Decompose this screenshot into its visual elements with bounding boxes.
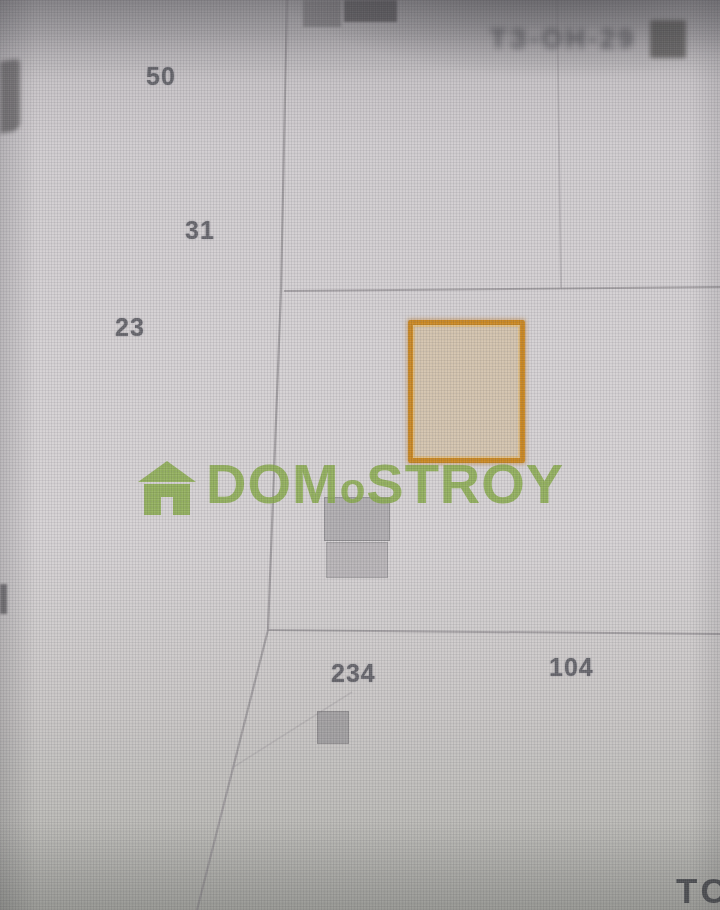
parcel-label: 104 <box>549 653 594 682</box>
building-footprint <box>326 542 388 578</box>
parcel-label: 31 <box>185 216 215 245</box>
selected-parcel-highlight[interactable] <box>408 320 525 463</box>
map-marker-square <box>650 20 686 58</box>
building-footprint <box>344 0 397 22</box>
map-feature-left-edge <box>0 584 7 614</box>
cadastral-map-viewport[interactable]: 50 31 23 234 104 ТС ТЗ-ОН-29 DOMoSTROY <box>0 0 720 910</box>
parcel-label: 50 <box>146 62 176 91</box>
zone-label-tc: ТС <box>676 871 720 910</box>
building-footprint <box>317 711 349 744</box>
boundary-line-diagonal <box>197 630 268 910</box>
parcel-label: 234 <box>331 659 376 688</box>
map-feature-left-edge <box>0 59 20 134</box>
zone-label-topright: ТЗ-ОН-29 <box>490 24 636 55</box>
boundary-line-vertical <box>268 0 287 630</box>
watermark: DOMoSTROY <box>138 456 564 517</box>
building-footprint <box>303 0 341 27</box>
parcel-boundary-lines <box>0 0 720 910</box>
boundary-line-horizontal-lower <box>268 630 720 634</box>
boundary-line-horizontal-upper <box>284 287 720 291</box>
parcel-label: 23 <box>115 313 145 342</box>
watermark-text: DOMoSTROY <box>206 456 564 517</box>
house-icon <box>138 461 196 515</box>
